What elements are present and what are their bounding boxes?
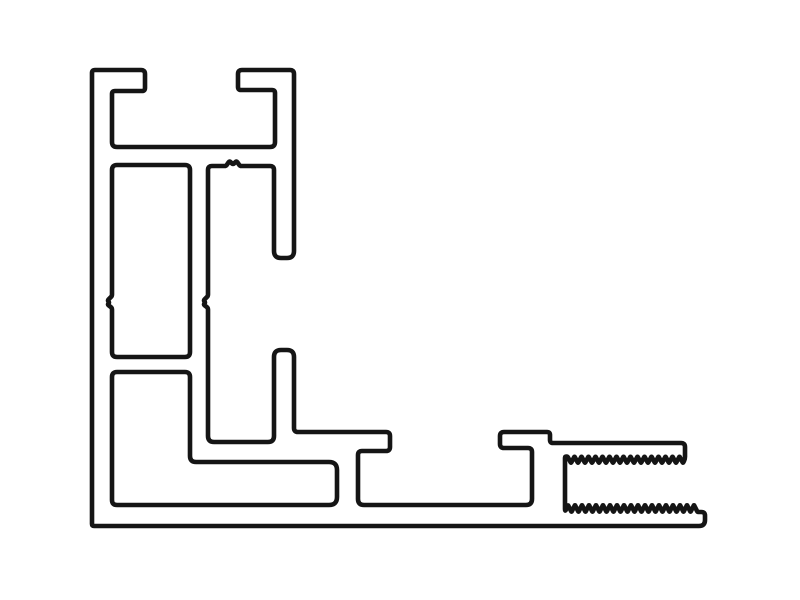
profile-outer-silhouette (92, 70, 705, 526)
profile-cross-section-drawing (0, 0, 800, 600)
drawing-page (0, 0, 800, 600)
cavity-l-shaped (112, 372, 337, 505)
cavity-tall-rectangle (108, 165, 190, 357)
